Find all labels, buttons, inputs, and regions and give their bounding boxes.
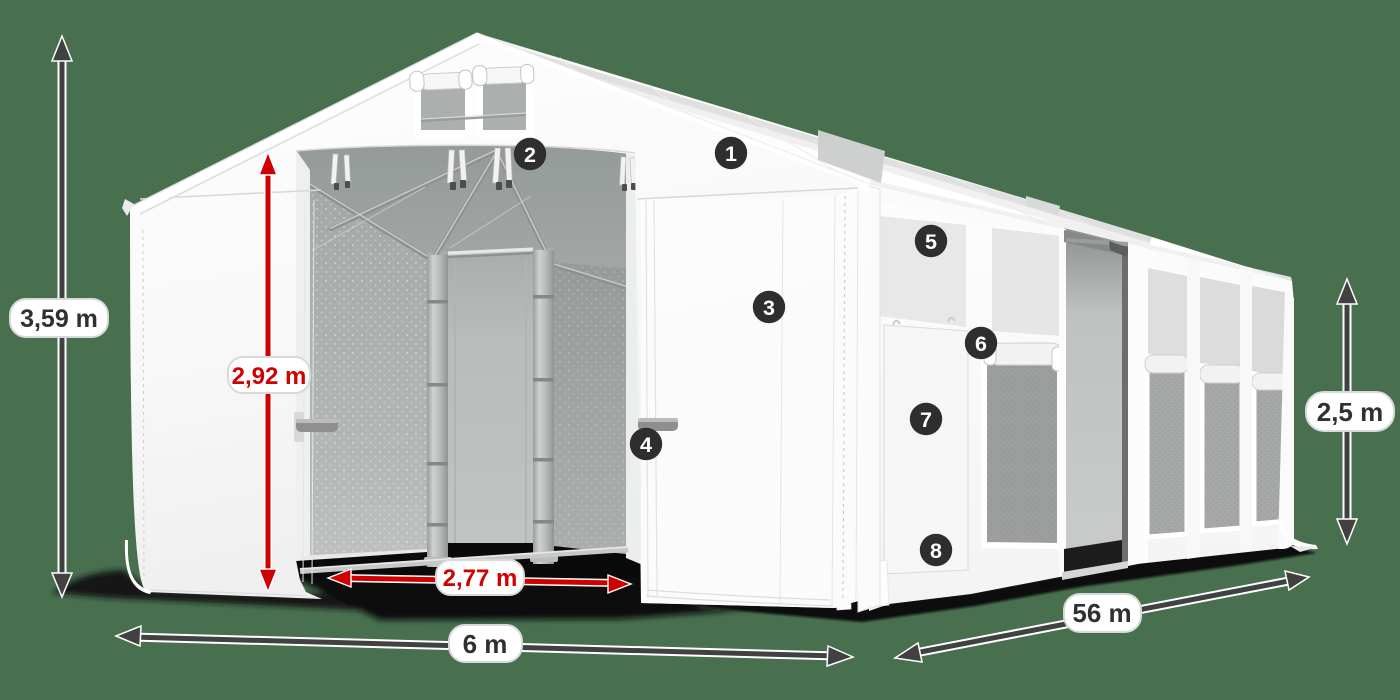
svg-text:8: 8: [930, 539, 942, 563]
svg-text:6: 6: [975, 332, 987, 356]
svg-text:3: 3: [763, 296, 775, 320]
svg-text:2,5 m: 2,5 m: [1317, 397, 1384, 427]
svg-text:1: 1: [725, 142, 737, 166]
svg-text:3,59 m: 3,59 m: [20, 305, 98, 333]
svg-text:7: 7: [920, 408, 932, 432]
svg-text:6 m: 6 m: [463, 629, 508, 659]
svg-text:2,77 m: 2,77 m: [443, 565, 518, 592]
svg-text:4: 4: [640, 433, 652, 457]
svg-text:5: 5: [925, 230, 937, 254]
svg-text:56 m: 56 m: [1072, 598, 1131, 628]
svg-text:2,92 m: 2,92 m: [232, 363, 307, 390]
svg-text:2: 2: [524, 143, 536, 167]
